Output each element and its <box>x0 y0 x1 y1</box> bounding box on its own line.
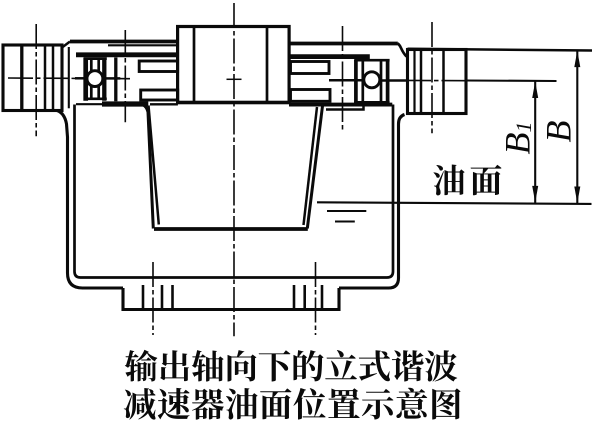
svg-text:B: B <box>539 121 579 143</box>
